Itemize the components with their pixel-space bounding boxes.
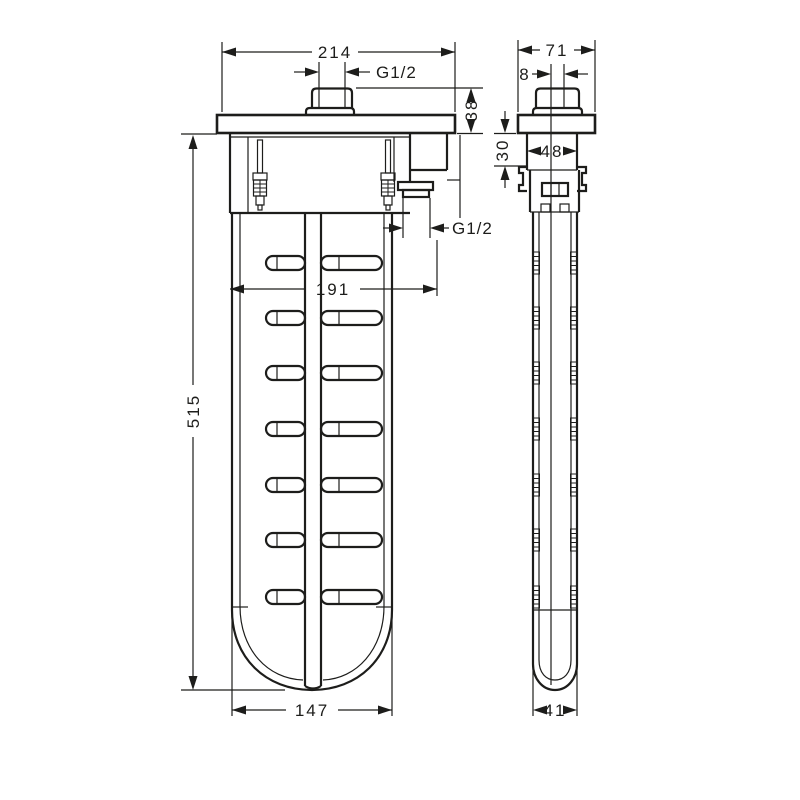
dim-label-8: 8 [519, 65, 530, 84]
dim-label-515: 515 [184, 394, 203, 428]
background [0, 0, 800, 800]
dimensional-drawing: 214 G1/2 38 515 [0, 0, 800, 800]
technical-drawing-page: 214 G1/2 38 515 [0, 0, 800, 800]
dim-label-30: 30 [493, 139, 512, 162]
dim-label-48: 48 [541, 142, 564, 161]
dim-label-g12-top: G1/2 [376, 63, 417, 82]
dim-label-41: 41 [544, 701, 567, 720]
dim-label-214: 214 [318, 43, 352, 62]
dim-label-147: 147 [295, 701, 329, 720]
dim-label-g12-side: G1/2 [452, 219, 493, 238]
dim-label-71: 71 [546, 41, 569, 60]
dim-label-38: 38 [462, 99, 481, 122]
